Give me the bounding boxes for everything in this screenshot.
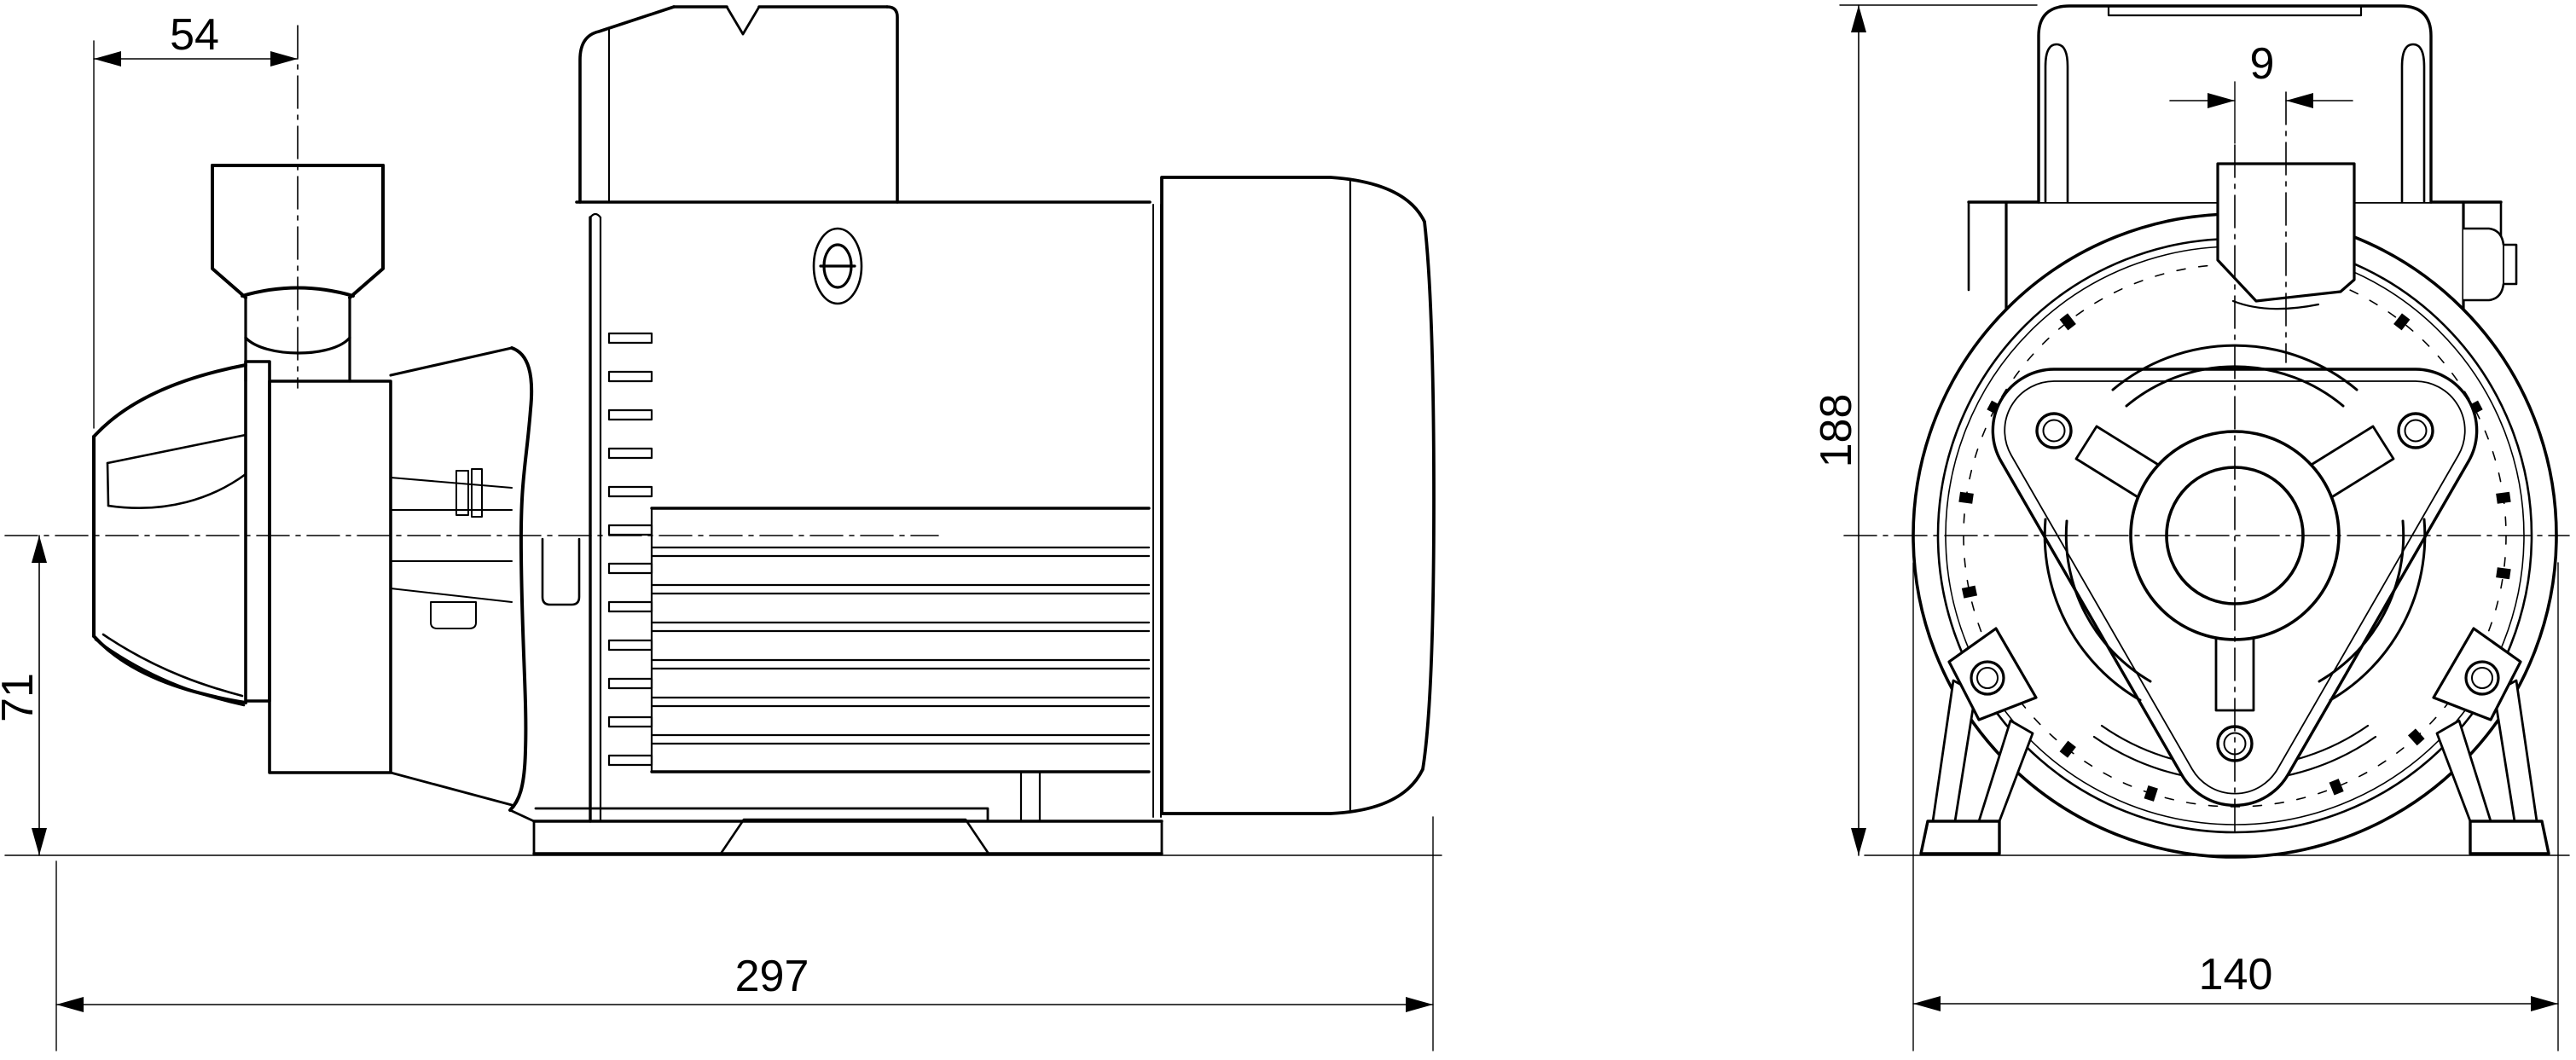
dim-297-text: 297	[735, 952, 809, 1001]
dim-54-text: 54	[170, 10, 219, 60]
dim-140-text: 140	[2199, 950, 2273, 999]
dim-71-text: 71	[0, 673, 43, 722]
dim-188-text: 188	[1812, 394, 1861, 468]
drawing-canvas: 54 71 297	[0, 0, 2576, 1060]
dim-9-text: 9	[2250, 39, 2275, 89]
pump-technical-drawing: 54 71 297	[0, 0, 2576, 1060]
